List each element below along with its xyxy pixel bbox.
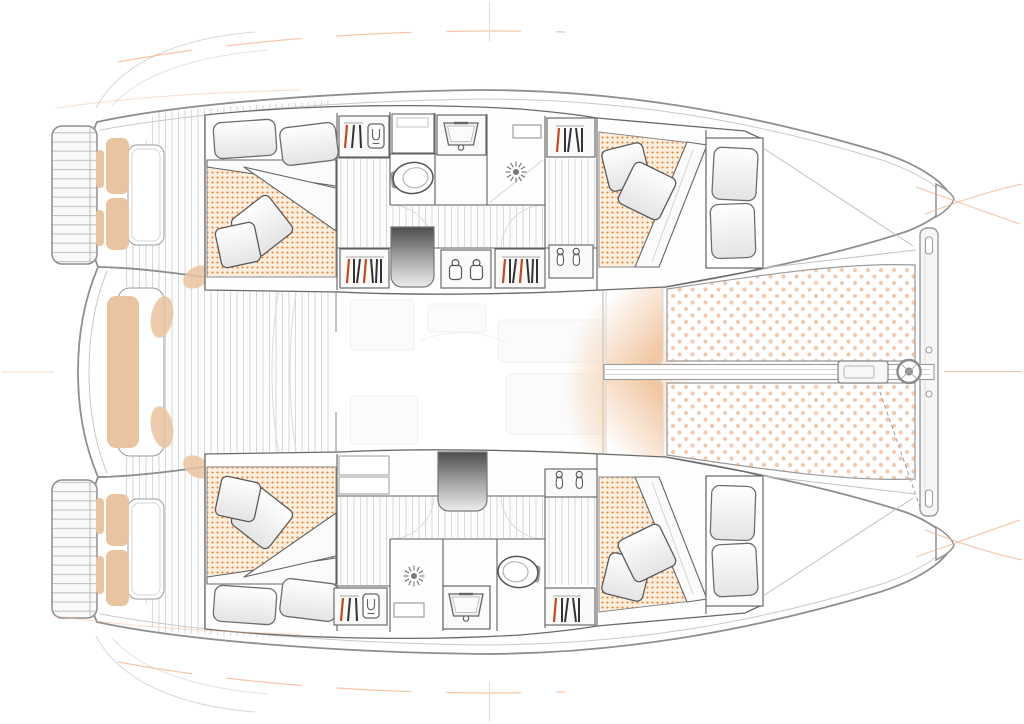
footwear-locker bbox=[549, 245, 593, 278]
crossbeam-slot-port bbox=[926, 237, 933, 254]
helm-cushion-starboard bbox=[106, 494, 129, 546]
port-aft-cabin bbox=[207, 119, 339, 277]
pillow bbox=[213, 119, 277, 159]
starboard-corridor-planks bbox=[546, 497, 595, 585]
pillow bbox=[710, 203, 756, 259]
starboard-corridor-planks bbox=[339, 497, 389, 585]
port-corridor-planks bbox=[339, 159, 389, 247]
water-heater-icon bbox=[363, 594, 379, 618]
helm-seat-starboard bbox=[128, 499, 164, 599]
companionway-steps-port bbox=[391, 227, 434, 287]
pillow bbox=[279, 122, 339, 167]
helm-cushion-port bbox=[106, 198, 129, 250]
shower-shelf bbox=[513, 125, 541, 138]
wardrobe bbox=[547, 118, 595, 157]
aft-bench-cushion bbox=[107, 296, 139, 448]
crossbeam-slot-starboard bbox=[926, 490, 933, 507]
cabinet bbox=[339, 477, 389, 494]
shower-shelf bbox=[394, 603, 424, 617]
throw-cushion bbox=[214, 475, 261, 522]
side-pad-starboard bbox=[96, 498, 104, 534]
helm-cushion-starboard bbox=[106, 550, 129, 606]
pillow bbox=[710, 485, 756, 541]
helm-seat-port bbox=[128, 145, 164, 245]
pillow bbox=[279, 578, 339, 623]
crossbeam-bolt bbox=[926, 391, 932, 397]
cabinet bbox=[339, 456, 389, 475]
wardrobe bbox=[545, 588, 595, 625]
side-pad-port bbox=[96, 150, 104, 188]
helm-cushion-port bbox=[106, 138, 129, 194]
bowsprit-fitting bbox=[838, 361, 888, 383]
side-pad-starboard bbox=[96, 556, 104, 594]
pillow bbox=[213, 585, 277, 625]
companionway-steps-starboard bbox=[438, 452, 487, 511]
side-pad-port bbox=[96, 210, 104, 246]
starboard-aft-cabin bbox=[207, 467, 339, 625]
floorplan-image bbox=[0, 0, 1024, 724]
water-heater-icon bbox=[368, 124, 384, 148]
port-corridor-planks bbox=[546, 159, 595, 247]
footwear-locker bbox=[545, 469, 597, 497]
crossbeam-bolt bbox=[926, 347, 932, 353]
pillow bbox=[712, 147, 759, 201]
pillow bbox=[712, 543, 759, 597]
locker bbox=[441, 250, 491, 288]
throw-cushion bbox=[214, 221, 261, 268]
